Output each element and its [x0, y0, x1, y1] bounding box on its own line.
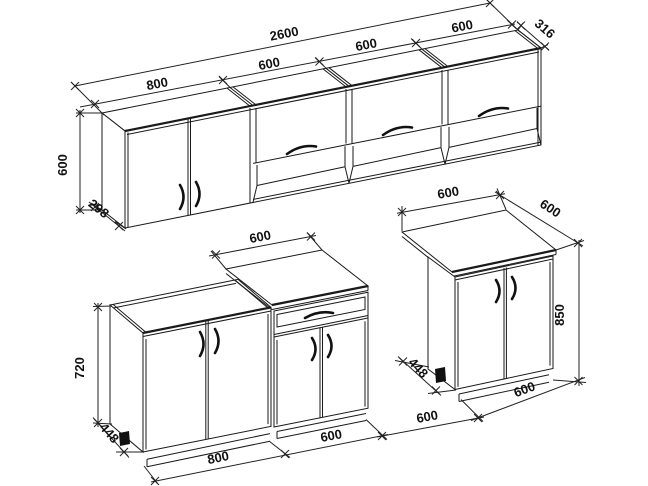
dim-wall-segment-600-a: 600	[257, 54, 281, 73]
adjustable-foot	[435, 367, 446, 383]
drawing-svg: 2600 800 600 600 600 316 600 298 720 448…	[0, 0, 648, 486]
dim-right-height-850: 850	[552, 304, 567, 326]
dim-wall-total-width: 2600	[269, 23, 300, 43]
dim-sink-width-800: 800	[206, 448, 230, 467]
dim-wall-depth-316: 316	[532, 16, 558, 42]
dim-right-top-depth-600: 600	[537, 196, 563, 220]
dim-counter-width-600: 600	[319, 426, 343, 445]
sink-base-cabinet-800	[110, 279, 271, 466]
dim-gap-width-600: 600	[415, 407, 439, 426]
dim-worktop-width-600: 600	[248, 227, 272, 246]
dim-right-top-width-600: 600	[436, 183, 460, 202]
dim-wall-height-600: 600	[55, 154, 70, 176]
dim-right-depth-448: 448	[405, 355, 431, 381]
kitchen-technical-drawing: 2600 800 600 600 600 316 600 298 720 448…	[0, 0, 648, 486]
dim-base-height-720: 720	[72, 357, 87, 379]
